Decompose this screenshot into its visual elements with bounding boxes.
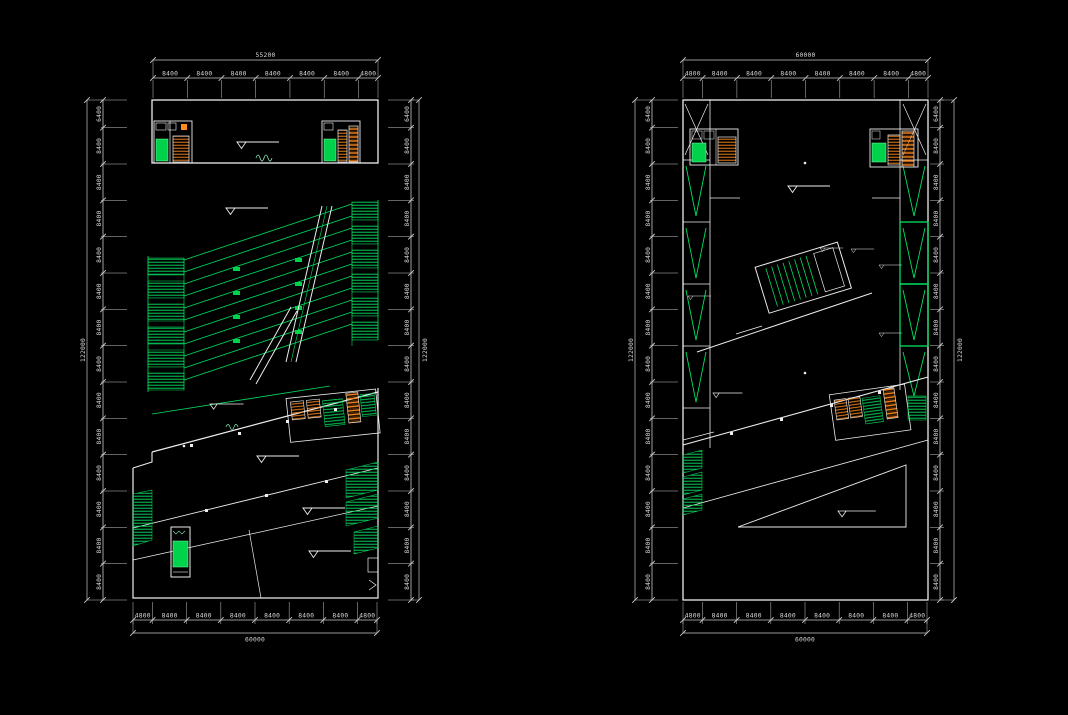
parking-stall-hatch bbox=[683, 494, 702, 515]
dim-segment-label: 8400 bbox=[96, 501, 103, 517]
dim-segment-label: 8400 bbox=[933, 356, 940, 372]
dim-segment-label: 8400 bbox=[96, 574, 103, 590]
dim-total-label: 122000 bbox=[80, 338, 87, 362]
outer-wall bbox=[683, 100, 928, 600]
stair-elevator-core-icon bbox=[322, 121, 360, 163]
dim-chain-right-plan-bottom: 4800840084008400840084008400480060000 bbox=[680, 602, 930, 644]
ramp-triangle bbox=[738, 465, 906, 527]
dim-segment-label: 4800 bbox=[685, 71, 701, 78]
dim-segment-label: 8400 bbox=[96, 356, 103, 372]
dim-segment-label: 8400 bbox=[645, 501, 652, 517]
dim-segment-label: 6400 bbox=[645, 106, 652, 122]
dim-segment-label: 6400 bbox=[404, 106, 411, 122]
dim-segment-label: 8400 bbox=[404, 356, 411, 372]
level-marker-icon bbox=[788, 186, 830, 193]
dim-total-label: 60000 bbox=[245, 637, 265, 644]
dim-chain-left-plan-left: 6400840084008400840084008400840084008400… bbox=[80, 97, 127, 603]
dim-segment-label: 8400 bbox=[196, 71, 212, 78]
dim-segment-label: 8400 bbox=[645, 211, 652, 227]
dim-segment-label: 8400 bbox=[645, 247, 652, 263]
dim-segment-label: 8400 bbox=[231, 71, 247, 78]
dim-segment-label: 8400 bbox=[162, 613, 178, 620]
dim-segment-label: 4800 bbox=[359, 613, 375, 620]
dim-total-label: 55200 bbox=[256, 52, 276, 59]
level-marker-icon bbox=[838, 511, 876, 517]
dim-segment-label: 8400 bbox=[712, 613, 728, 620]
dim-segment-label: 8400 bbox=[96, 320, 103, 336]
dim-segment-label: 8400 bbox=[230, 613, 246, 620]
level-marker-icon bbox=[257, 456, 299, 463]
dim-segment-label: 8400 bbox=[645, 392, 652, 408]
revision-squiggle-icon bbox=[256, 155, 272, 161]
dim-segment-label: 8400 bbox=[96, 247, 103, 263]
central-stair-icon bbox=[697, 242, 872, 352]
point-marker bbox=[804, 162, 807, 165]
dim-segment-label: 4800 bbox=[685, 613, 701, 620]
stair-elevator-core-icon bbox=[690, 129, 738, 165]
dim-segment-label: 8400 bbox=[404, 392, 411, 408]
dim-total-label: 122000 bbox=[628, 338, 635, 362]
door-notch bbox=[368, 558, 378, 572]
dim-segment-label: 8400 bbox=[645, 574, 652, 590]
dim-segment-label: 8400 bbox=[404, 211, 411, 227]
dim-segment-label: 8400 bbox=[265, 71, 281, 78]
dim-segment-label: 8400 bbox=[933, 465, 940, 481]
dim-segment-label: 8400 bbox=[96, 138, 103, 154]
parking-stall-hatch bbox=[354, 526, 378, 554]
dim-segment-label: 8400 bbox=[196, 613, 212, 620]
ramp-diagonals bbox=[250, 206, 332, 384]
dim-segment-label: 8400 bbox=[933, 429, 940, 445]
dim-segment-label: 8400 bbox=[712, 71, 728, 78]
dim-total-label: 60000 bbox=[796, 52, 816, 59]
parking-stall-hatch bbox=[683, 472, 702, 495]
level-marker-icon bbox=[713, 393, 742, 398]
stair-elevator-core-icon bbox=[286, 389, 380, 442]
level-marker-icon bbox=[879, 265, 902, 269]
dim-segment-label: 8400 bbox=[933, 392, 940, 408]
cad-canvas[interactable]: 8400840084008400840084004800552004800840… bbox=[0, 0, 1068, 715]
dim-segment-label: 8400 bbox=[404, 174, 411, 190]
level-marker-icon bbox=[303, 508, 345, 515]
dim-segment-label: 8400 bbox=[404, 138, 411, 154]
dim-segment-label: 8400 bbox=[933, 320, 940, 336]
dim-segment-label: 8400 bbox=[264, 613, 280, 620]
level-marker-icon bbox=[226, 208, 268, 215]
level-marker-icon bbox=[879, 333, 902, 337]
dim-segment-label: 8400 bbox=[162, 71, 178, 78]
dim-segment-label: 8400 bbox=[96, 283, 103, 299]
dim-total-label: 122000 bbox=[422, 338, 429, 362]
parking-stall-hatch bbox=[908, 396, 926, 420]
dim-segment-label: 8400 bbox=[96, 465, 103, 481]
dim-segment-label: 8400 bbox=[404, 283, 411, 299]
dim-segment-label: 8400 bbox=[645, 465, 652, 481]
dim-segment-label: 8400 bbox=[780, 613, 796, 620]
dim-chain-right-plan-top: 4800840084008400840084008400480060000 bbox=[680, 52, 931, 98]
point-marker bbox=[183, 445, 186, 448]
dim-segment-label: 8400 bbox=[645, 174, 652, 190]
dim-segment-label: 8400 bbox=[96, 392, 103, 408]
dim-segment-label: 8400 bbox=[404, 320, 411, 336]
dim-segment-label: 8400 bbox=[933, 247, 940, 263]
parking-stall-hatch bbox=[352, 202, 378, 340]
point-marker bbox=[804, 372, 807, 375]
dim-segment-label: 8400 bbox=[933, 283, 940, 299]
dim-segment-label: 8400 bbox=[849, 71, 865, 78]
stair-elevator-core-icon bbox=[154, 121, 192, 163]
dim-chain-left-plan-right: 6400840084008400840084008400840084008400… bbox=[388, 97, 429, 603]
left-plan-parking-ramp-area bbox=[148, 200, 378, 392]
drawing-svg: 8400840084008400840084004800552004800840… bbox=[0, 0, 1068, 715]
duplex-v-icons bbox=[903, 166, 925, 396]
level-marker-icon bbox=[309, 551, 351, 558]
dimension-chains: 8400840084008400840084004800552004800840… bbox=[80, 52, 964, 643]
stair-elevator-core-icon bbox=[870, 129, 918, 167]
elevator-shaft-icon bbox=[171, 527, 190, 577]
dim-segment-label: 8400 bbox=[645, 538, 652, 554]
dim-segment-label: 8400 bbox=[746, 71, 762, 78]
dim-segment-label: 8400 bbox=[780, 71, 796, 78]
dim-segment-label: 8400 bbox=[333, 71, 349, 78]
dim-segment-label: 8400 bbox=[746, 613, 762, 620]
left-plan-lower-block bbox=[133, 386, 380, 598]
level-marker-icon bbox=[851, 249, 874, 253]
dim-segment-label: 8400 bbox=[404, 465, 411, 481]
dim-chain-left-plan-bottom: 4800840084008400840084008400480060000 bbox=[130, 602, 380, 644]
parking-stall-hatch bbox=[133, 490, 152, 546]
parking-stall-hatch bbox=[346, 494, 378, 526]
dim-segment-label: 8400 bbox=[404, 501, 411, 517]
parking-stall-hatch bbox=[148, 258, 184, 390]
level-marker-icon bbox=[237, 142, 279, 149]
dim-segment-label: 8400 bbox=[404, 247, 411, 263]
left-plan-top-block bbox=[152, 100, 378, 163]
revision-squiggle-icon bbox=[226, 425, 238, 430]
dim-segment-label: 8400 bbox=[815, 71, 831, 78]
right-plan-middle-band bbox=[683, 377, 928, 515]
dim-segment-label: 8400 bbox=[298, 613, 314, 620]
dim-segment-label: 8400 bbox=[933, 211, 940, 227]
dim-segment-label: 8400 bbox=[933, 174, 940, 190]
dim-segment-label: 8400 bbox=[848, 613, 864, 620]
dim-total-label: 122000 bbox=[957, 338, 964, 362]
dim-segment-label: 8400 bbox=[645, 429, 652, 445]
dim-segment-label: 8400 bbox=[96, 429, 103, 445]
dim-segment-label: 8400 bbox=[814, 613, 830, 620]
dim-segment-label: 8400 bbox=[645, 320, 652, 336]
dim-segment-label: 8400 bbox=[404, 574, 411, 590]
dim-segment-label: 8400 bbox=[299, 71, 315, 78]
dim-segment-label: 8400 bbox=[404, 538, 411, 554]
dim-segment-label: 8400 bbox=[933, 574, 940, 590]
dim-segment-label: 8400 bbox=[883, 71, 899, 78]
dim-segment-label: 4800 bbox=[135, 613, 151, 620]
parking-stall-hatch bbox=[346, 462, 378, 498]
dim-segment-label: 6400 bbox=[96, 106, 103, 122]
dim-segment-label: 8400 bbox=[882, 613, 898, 620]
left-floor-plan bbox=[133, 100, 380, 598]
level-marker-icon bbox=[210, 404, 244, 409]
dim-chain-right-plan-right: 6400840084008400840084008400840084008400… bbox=[930, 97, 964, 603]
dim-chain-right-plan-left: 6400840084008400840084008400840084008400… bbox=[628, 97, 678, 603]
dim-segment-label: 8400 bbox=[645, 283, 652, 299]
dim-chain-left-plan-top: 840084008400840084008400480055200 bbox=[150, 52, 381, 98]
dim-segment-label: 8400 bbox=[645, 138, 652, 154]
dim-segment-label: 4800 bbox=[360, 71, 376, 78]
dim-segment-label: 8400 bbox=[404, 429, 411, 445]
dim-segment-label: 4800 bbox=[909, 613, 925, 620]
dim-segment-label: 8400 bbox=[645, 356, 652, 372]
dim-segment-label: 8400 bbox=[933, 138, 940, 154]
dim-segment-label: 8400 bbox=[332, 613, 348, 620]
dim-segment-label: 6400 bbox=[933, 106, 940, 122]
door-swing-icon bbox=[369, 580, 376, 590]
level-marker-icon bbox=[688, 296, 711, 300]
dim-segment-label: 8400 bbox=[96, 211, 103, 227]
dim-segment-label: 8400 bbox=[933, 501, 940, 517]
dim-segment-label: 4800 bbox=[910, 71, 926, 78]
dim-segment-label: 8400 bbox=[96, 174, 103, 190]
dim-segment-label: 8400 bbox=[933, 538, 940, 554]
right-floor-plan bbox=[683, 100, 928, 600]
parking-stall-hatch bbox=[683, 450, 702, 473]
dim-total-label: 60000 bbox=[795, 637, 815, 644]
dim-segment-label: 8400 bbox=[96, 538, 103, 554]
